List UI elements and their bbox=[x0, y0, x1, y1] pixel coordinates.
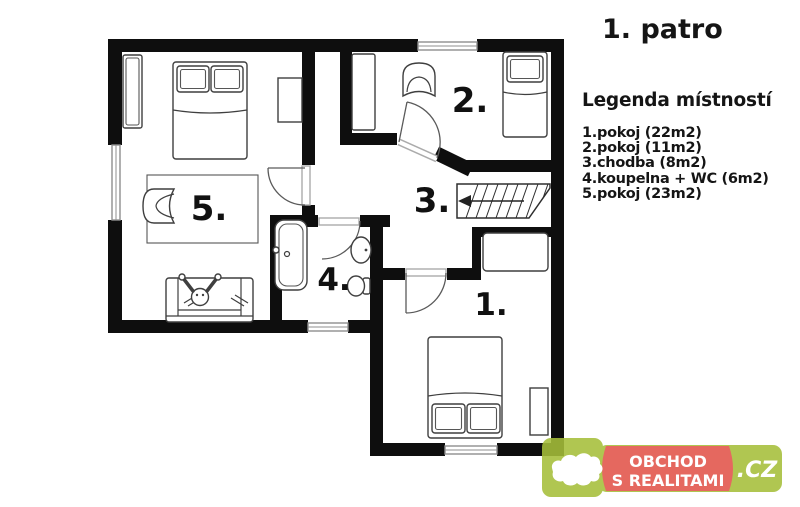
room-1-label: 1. bbox=[474, 287, 507, 323]
legend-heading: Legenda místností bbox=[582, 90, 772, 111]
logo-text-line1: OBCHOD bbox=[629, 452, 707, 471]
door-room5 bbox=[268, 166, 310, 205]
legend-item-4: 4.koupelna + WC (6m2) bbox=[582, 172, 772, 187]
room-legend: Legenda místností 1.pokoj (22m2) 2.pokoj… bbox=[582, 90, 772, 202]
floorplan-page: 1. 2. 3. 4. 5. OBCHOD S REALITAMI .CZ 1.… bbox=[0, 0, 800, 507]
room-1-furniture bbox=[428, 233, 548, 438]
cabinet bbox=[278, 78, 302, 122]
legend-item-5: 5.pokoj (23m2) bbox=[582, 187, 772, 202]
legend-item-1: 1.pokoj (22m2) bbox=[582, 126, 772, 141]
door-room2 bbox=[399, 102, 440, 159]
nightstand bbox=[530, 388, 548, 435]
window-bathroom bbox=[308, 323, 348, 331]
floor-plan: 1. 2. 3. 4. 5. OBCHOD S REALITAMI .CZ bbox=[0, 0, 800, 507]
staircase bbox=[457, 184, 550, 218]
closet bbox=[483, 233, 548, 271]
room-4-label: 4. bbox=[317, 262, 350, 298]
window-room1 bbox=[445, 446, 497, 454]
armchair bbox=[143, 189, 174, 223]
legend-item-3: 3.chodba (8m2) bbox=[582, 156, 772, 171]
door-room1 bbox=[406, 269, 446, 313]
sofa bbox=[166, 278, 253, 322]
window-left bbox=[112, 145, 120, 220]
double-bed bbox=[173, 62, 247, 159]
watermark-logo: OBCHOD S REALITAMI .CZ bbox=[542, 438, 782, 497]
legend-item-2: 2.pokoj (11m2) bbox=[582, 141, 772, 156]
sink bbox=[351, 237, 371, 263]
room-2-furniture bbox=[352, 52, 547, 137]
window-top bbox=[418, 42, 477, 50]
bathtub bbox=[273, 220, 307, 290]
logo-text-line2: S REALITAMI bbox=[612, 471, 725, 490]
wardrobe bbox=[352, 54, 375, 130]
toilet bbox=[348, 276, 371, 296]
double-bed bbox=[428, 337, 502, 438]
logo-tld: .CZ bbox=[737, 458, 779, 483]
room-3-label: 3. bbox=[414, 181, 451, 221]
armchair bbox=[403, 63, 435, 96]
room-5-label: 5. bbox=[191, 189, 228, 229]
single-bed bbox=[503, 52, 547, 137]
room-2-label: 2. bbox=[452, 81, 489, 121]
wardrobe bbox=[123, 55, 142, 128]
page-title: 1. patro bbox=[602, 14, 723, 45]
